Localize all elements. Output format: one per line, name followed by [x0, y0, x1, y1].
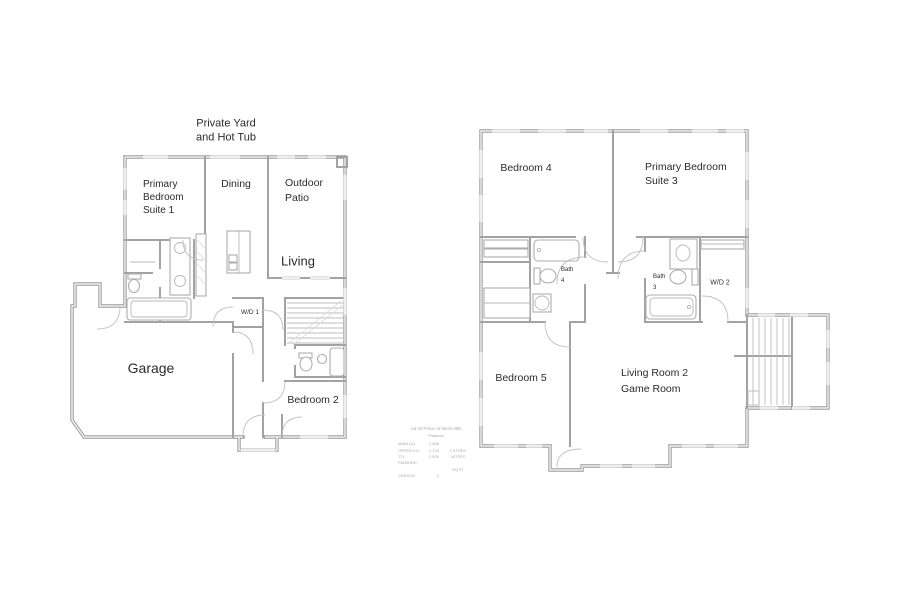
label-garage: Garage: [128, 359, 175, 377]
label-dining: Dining: [221, 178, 251, 192]
label-bedroom-5: Bedroom 5: [495, 372, 546, 386]
label-primary-suite-3: Primary Bedroom Suite 3: [645, 161, 727, 188]
label-bedroom-4: Bedroom 4: [500, 162, 551, 176]
label-private-yard: Private Yard and Hot Tub: [196, 117, 256, 146]
label-wd-2: W/D 2: [710, 278, 729, 287]
title-block: Lot 40 Power at Glenn Hills Platinum MAI…: [398, 426, 474, 479]
label-living-room-2: Living Room 2 Game Room: [621, 366, 688, 398]
label-living: Living: [281, 254, 315, 271]
bath2-fixtures: [299, 348, 344, 376]
label-bath-3: Bath 3: [653, 272, 665, 295]
first-floor-stairs: [287, 301, 344, 345]
label-primary-suite-1: Primary Bedroom Suite 1: [143, 178, 184, 217]
title-block-name: Lot 40 Power at Glenn Hills: [398, 426, 474, 433]
title-block-series: Platinum: [398, 433, 474, 439]
title-block-row: TTL FINISHED2,539NOTES: [398, 454, 474, 467]
label-wd-1: W/D 1: [241, 309, 259, 317]
floor-plan-page: Private Yard and Hot Tub Primary Bedroom…: [0, 0, 900, 600]
label-outdoor-patio: Outdoor Patio: [285, 176, 323, 205]
floor-plans-drawing: [0, 0, 900, 600]
label-bedroom-2: Bedroom 2: [287, 394, 338, 408]
title-block-row: GARAGE2: [398, 473, 474, 479]
kitchen-island: [196, 231, 250, 296]
label-bath-4: Bath 4: [561, 265, 573, 288]
second-floor-stairs: [748, 318, 789, 405]
